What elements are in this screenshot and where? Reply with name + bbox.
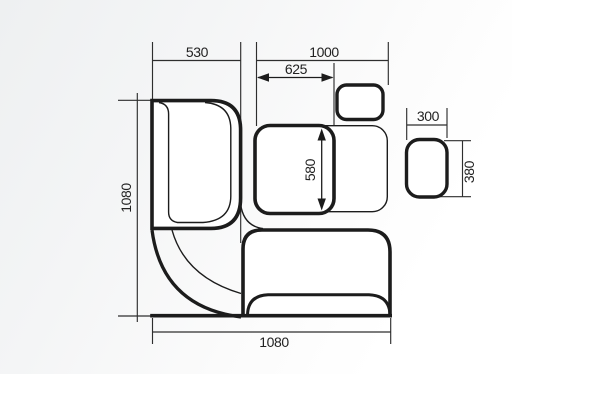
dim-label-580: 580	[303, 159, 317, 181]
bottom-bench	[243, 230, 390, 317]
arrowhead-right-icon	[322, 73, 334, 81]
dim-label-530: 530	[186, 45, 208, 59]
furniture-plan-svg	[0, 0, 600, 400]
dim-label-300: 300	[417, 109, 439, 123]
stool-right	[407, 140, 448, 198]
dim-label-380: 380	[462, 161, 476, 183]
plan-drawing-stage: 530 1000 625 580 1080 1080 300 380	[0, 0, 600, 400]
corner-front-arc	[152, 230, 241, 317]
arrowhead-left-icon	[257, 73, 269, 81]
left-bench	[152, 101, 241, 230]
corner-seat-arc	[172, 230, 241, 294]
dim-label-1000: 1000	[309, 45, 339, 59]
dim-label-1080-left: 1080	[119, 183, 133, 213]
dim-label-625: 625	[285, 62, 307, 76]
stool-top	[337, 85, 383, 120]
bottom-bench-outer	[243, 230, 390, 317]
dim-label-1080-bottom: 1080	[259, 335, 289, 349]
